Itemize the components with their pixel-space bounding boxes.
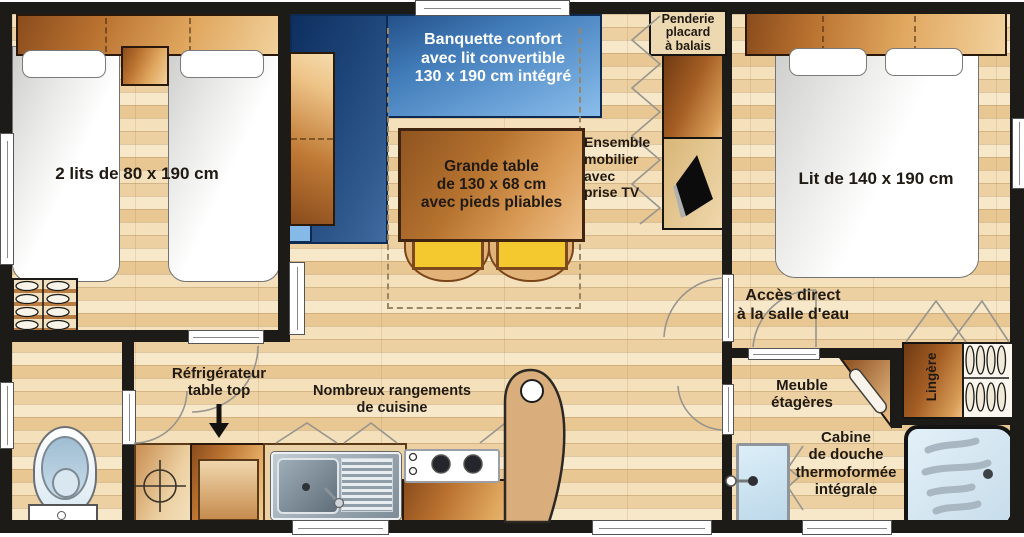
sink-drainer (341, 458, 393, 512)
table-label: Grande table de 130 x 68 cm avec pieds p… (421, 158, 562, 212)
wall-bath-top-a (722, 348, 748, 358)
wall-bath-left-a (722, 358, 732, 384)
fridge-door (198, 459, 259, 521)
pillow (22, 50, 106, 78)
nightstand (121, 46, 169, 86)
stove-cooktop (404, 449, 500, 483)
label-meuble: Meuble étagères (744, 377, 860, 412)
window-left-bedroom (0, 133, 14, 265)
wall-right (1010, 2, 1024, 533)
sink-basin (277, 458, 339, 514)
door-wc (122, 390, 136, 445)
toilet-drain (52, 468, 80, 498)
pillow (885, 48, 963, 76)
wall-wc-right-b (122, 443, 134, 520)
label-acces: Accès direct à la salle d'eau (698, 287, 888, 324)
label-lingere: Lingère (924, 341, 940, 413)
penderie-label-box: Penderie placard à balais (649, 10, 727, 56)
label-bed-right: Lit de 140 x 190 cm (766, 169, 986, 189)
pillow (789, 48, 867, 76)
window-left-wc (0, 382, 14, 449)
entry-door (592, 520, 712, 535)
bed-double (775, 44, 979, 278)
toilet-button (57, 511, 66, 520)
tv-cabinet (662, 137, 727, 230)
pillow (180, 50, 264, 78)
headboard-right-bedroom (745, 12, 1007, 56)
window-bottom-bath (802, 520, 892, 535)
sliding-door-bedroom-left (289, 262, 305, 335)
louver-storage-left (12, 278, 78, 336)
label-ensemble-tv: Ensemble mobilier avec prise TV (584, 134, 670, 201)
label-cabine: Cabine de douche thermoformée intégrale (788, 429, 904, 499)
label-banquette: Banquette confort avec lit convertible 1… (368, 31, 618, 87)
wall-bath-top-b (818, 348, 902, 358)
door-opening-bedroom-left (188, 330, 264, 344)
wardrobe-cabinet (662, 52, 727, 141)
label-rangements: Nombreux rangements de cuisine (297, 383, 487, 417)
label-beds-left: 2 lits de 80 x 190 cm (17, 164, 257, 184)
floorplan-canvas: Grande table de 130 x 68 cm avec pieds p… (0, 0, 1024, 537)
wall-wc-right-a (122, 342, 134, 390)
door-bath-from-hall (722, 384, 734, 435)
window-right-bedroom (1012, 118, 1024, 189)
wall-bath-corner (892, 358, 902, 428)
window-top-living (415, 0, 570, 16)
wall-bedroom-left-bottom-a (12, 330, 188, 342)
penderie-label: Penderie placard à balais (662, 13, 715, 52)
label-refrigerateur: Réfrigérateur table top (150, 365, 288, 400)
shower-tray (904, 425, 1016, 533)
door-bath-from-bedroom (748, 348, 820, 360)
dining-table: Grande table de 130 x 68 cm avec pieds p… (398, 128, 585, 242)
kitchen-cabinet-utility (134, 443, 194, 527)
banquette-side-panel (289, 52, 335, 226)
window-bottom-kitchen (292, 520, 389, 535)
wall-bedroom-left-bottom-b (262, 330, 290, 342)
wall-left (0, 2, 12, 533)
wall-bath-left-b (722, 433, 732, 520)
louver-storage-right (962, 342, 1014, 419)
